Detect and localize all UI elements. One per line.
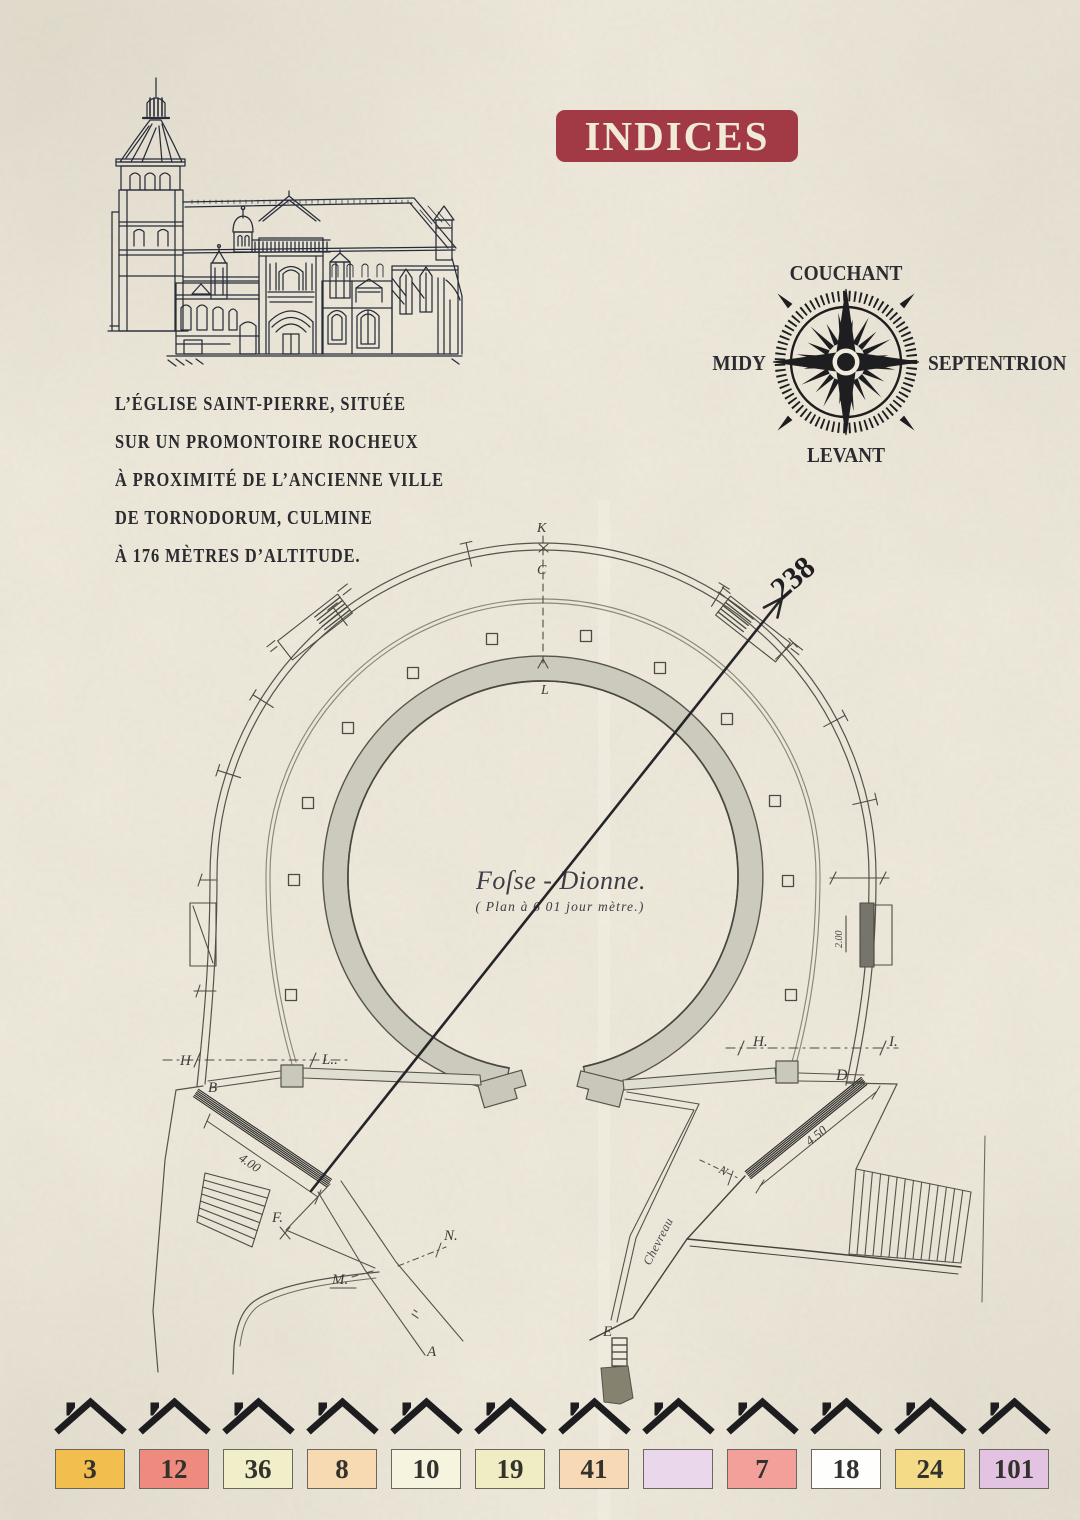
svg-text:K: K xyxy=(536,521,547,536)
svg-text:H: H xyxy=(179,1053,192,1069)
svg-text:A: A xyxy=(426,1344,437,1360)
svg-text:H.: H. xyxy=(752,1034,768,1050)
svg-text:L..: L.. xyxy=(321,1052,338,1068)
svg-text:Chevreau: Chevreau xyxy=(640,1215,676,1267)
svg-text:C: C xyxy=(537,563,547,578)
svg-text:L: L xyxy=(540,683,549,698)
svg-text:2.00: 2.00 xyxy=(834,931,845,949)
svg-text:M.: M. xyxy=(331,1272,348,1288)
svg-text:F.: F. xyxy=(271,1210,283,1226)
svg-text:E: E xyxy=(602,1324,612,1340)
svg-text:( Plan à 6 01 jour mètre.): ( Plan à 6 01 jour mètre.) xyxy=(475,899,644,914)
svg-text:I.: I. xyxy=(888,1034,898,1050)
svg-text:238: 238 xyxy=(764,549,822,606)
svg-text:N: N xyxy=(716,1162,732,1179)
svg-text:N.: N. xyxy=(443,1228,458,1244)
svg-text:B: B xyxy=(208,1080,217,1096)
svg-text:Foſse - Dionne.: Foſse - Dionne. xyxy=(475,866,646,895)
svg-text:D: D xyxy=(835,1067,848,1084)
svg-text:4.00: 4.00 xyxy=(236,1150,264,1175)
